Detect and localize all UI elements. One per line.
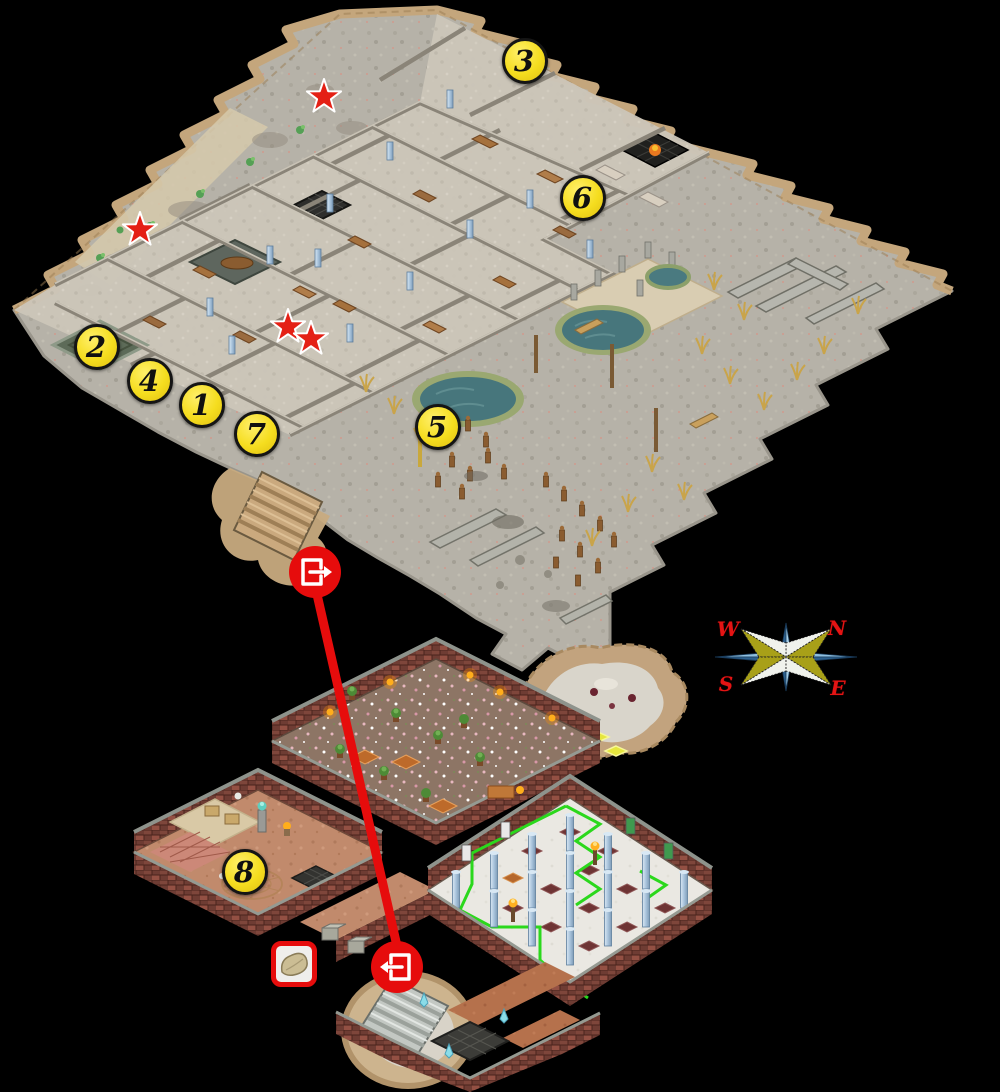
enter-door-icon[interactable] [371, 941, 423, 993]
item-box[interactable] [271, 941, 317, 987]
marker-label: 2 [86, 330, 106, 364]
map-marker-1[interactable]: 1 [179, 382, 225, 428]
map-marker-5[interactable]: 5 [415, 404, 461, 450]
compass-label-south: S [719, 672, 733, 696]
map-marker-6[interactable]: 6 [560, 175, 606, 221]
pillow-item-icon [276, 946, 310, 980]
marker-label: 5 [427, 410, 447, 444]
exit-door-icon[interactable] [289, 546, 341, 598]
map-marker-4[interactable]: 4 [127, 358, 173, 404]
marker-label: 8 [234, 855, 254, 889]
marker-label: 7 [246, 417, 266, 451]
map-marker-3[interactable]: 3 [502, 38, 548, 84]
map-artwork [0, 0, 1000, 1092]
map-marker-2[interactable]: 2 [74, 324, 120, 370]
marker-label: 3 [514, 44, 534, 78]
map-marker-8[interactable]: 8 [222, 849, 268, 895]
compass-label-east: E [830, 676, 845, 700]
map-marker-7[interactable]: 7 [234, 411, 280, 457]
marker-label: 1 [191, 388, 211, 422]
marker-label: 4 [139, 364, 159, 398]
walkthrough-map: 1 2 3 4 5 6 7 8 W N S E [0, 0, 1000, 1092]
upper-map [14, 10, 952, 670]
marker-label: 6 [572, 181, 592, 215]
compass-label-north: N [828, 616, 846, 640]
compass-label-west: W [717, 617, 739, 641]
